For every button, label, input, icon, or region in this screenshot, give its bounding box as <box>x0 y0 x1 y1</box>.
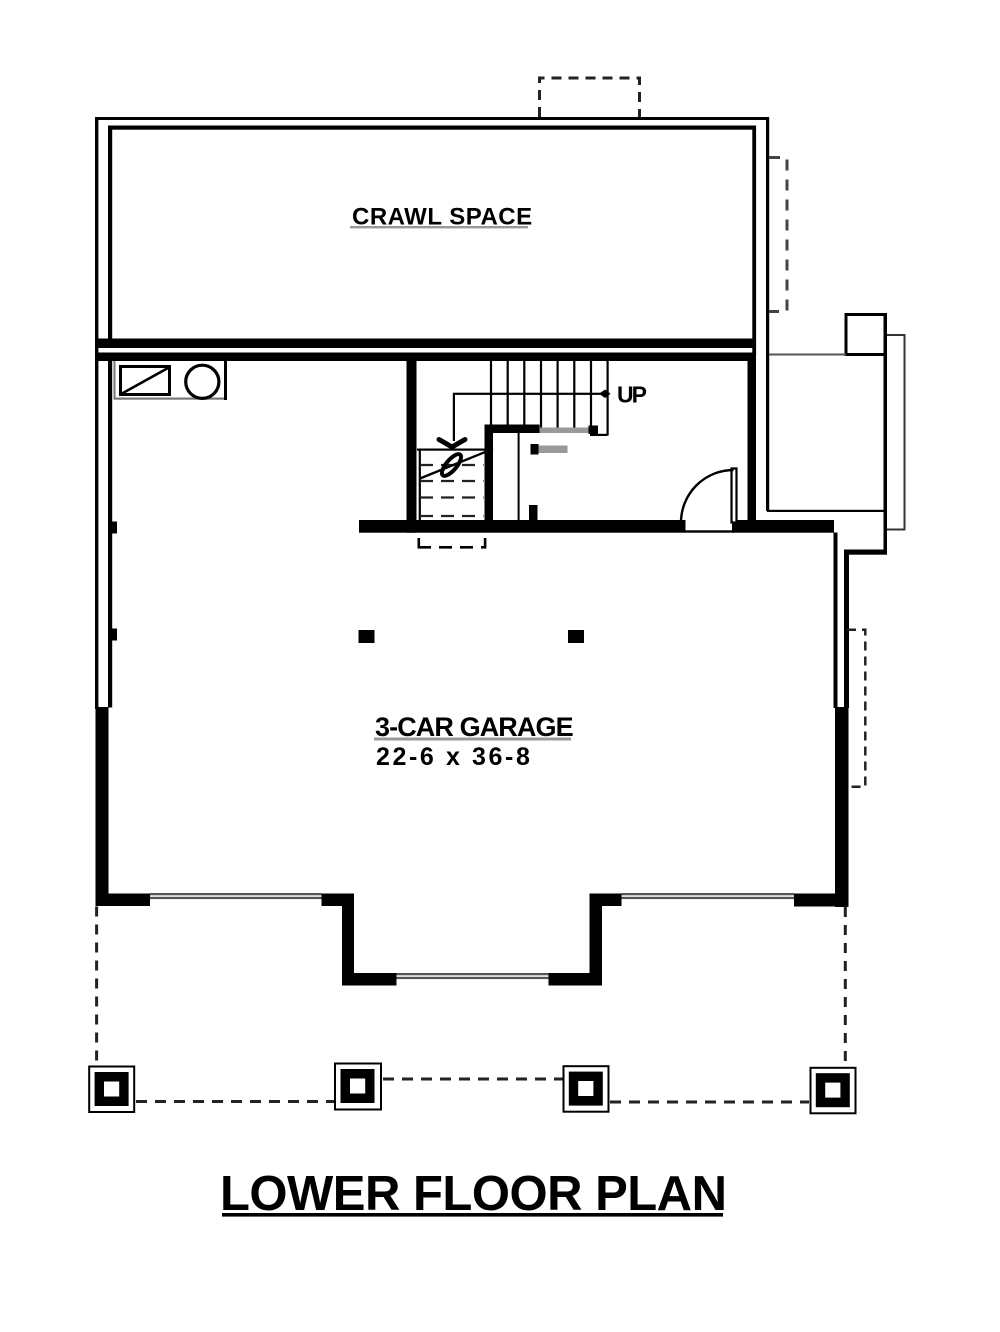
svg-text:UP: UP <box>617 382 647 408</box>
svg-text:LOWER FLOOR PLAN: LOWER FLOOR PLAN <box>220 1167 726 1221</box>
svg-text:22-6 x 36-8: 22-6 x 36-8 <box>376 743 532 771</box>
